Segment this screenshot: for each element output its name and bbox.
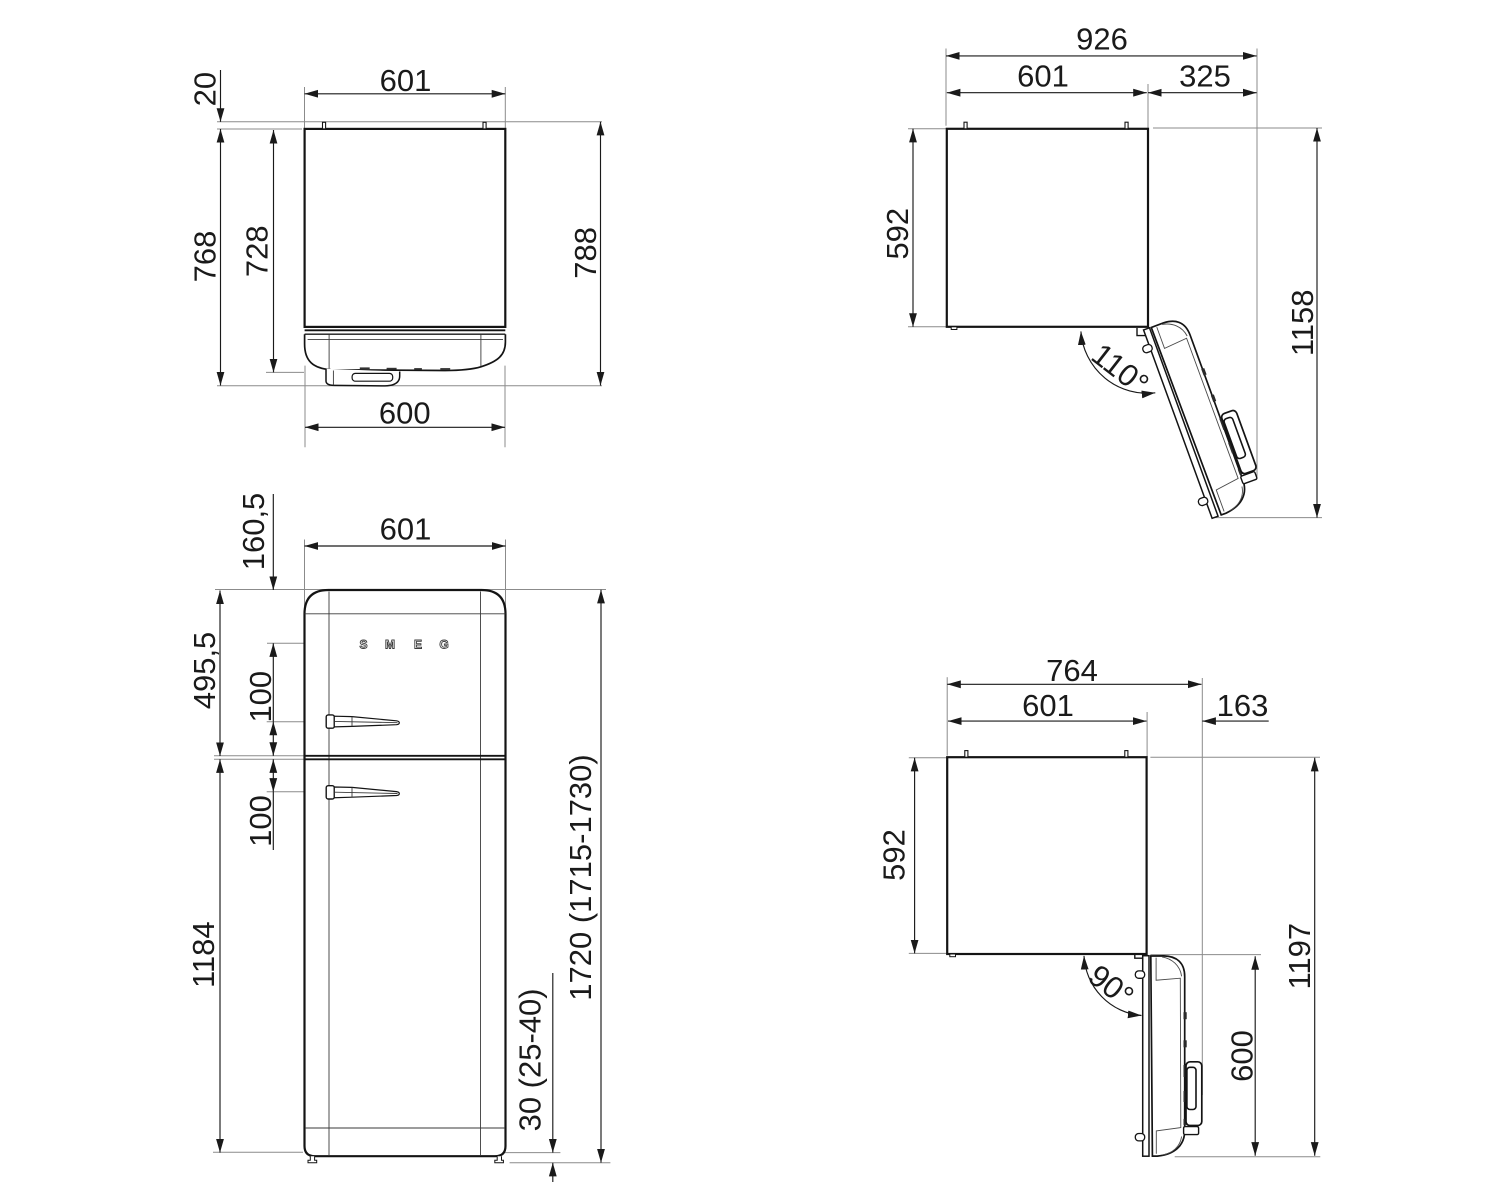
svg-text:1720 (1715-1730): 1720 (1715-1730) bbox=[563, 754, 598, 1000]
svg-text:G: G bbox=[439, 638, 448, 652]
svg-text:926: 926 bbox=[1076, 22, 1128, 57]
svg-text:788: 788 bbox=[568, 227, 603, 279]
svg-text:20: 20 bbox=[188, 72, 223, 106]
svg-text:601: 601 bbox=[380, 512, 432, 547]
svg-text:728: 728 bbox=[239, 225, 274, 277]
svg-text:601: 601 bbox=[1017, 58, 1069, 93]
svg-text:M: M bbox=[385, 638, 395, 652]
svg-text:100: 100 bbox=[243, 795, 278, 847]
svg-text:592: 592 bbox=[880, 208, 915, 260]
svg-text:601: 601 bbox=[1022, 688, 1074, 723]
svg-text:100: 100 bbox=[243, 671, 278, 723]
svg-text:30 (25-40): 30 (25-40) bbox=[513, 988, 548, 1131]
svg-text:768: 768 bbox=[188, 231, 223, 283]
svg-text:764: 764 bbox=[1046, 653, 1098, 688]
svg-text:600: 600 bbox=[379, 396, 431, 431]
svg-text:325: 325 bbox=[1179, 58, 1231, 93]
svg-text:592: 592 bbox=[877, 829, 912, 881]
svg-text:600: 600 bbox=[1225, 1030, 1260, 1082]
svg-text:1197: 1197 bbox=[1282, 923, 1317, 990]
svg-text:160,5: 160,5 bbox=[236, 493, 271, 571]
svg-text:S: S bbox=[359, 638, 367, 652]
svg-text:90°: 90° bbox=[1082, 958, 1140, 1014]
svg-text:601: 601 bbox=[380, 63, 432, 98]
svg-text:163: 163 bbox=[1217, 688, 1269, 723]
svg-text:E: E bbox=[414, 638, 422, 652]
svg-text:1158: 1158 bbox=[1285, 289, 1320, 356]
svg-text:1184: 1184 bbox=[186, 921, 221, 988]
svg-text:495,5: 495,5 bbox=[187, 632, 222, 710]
